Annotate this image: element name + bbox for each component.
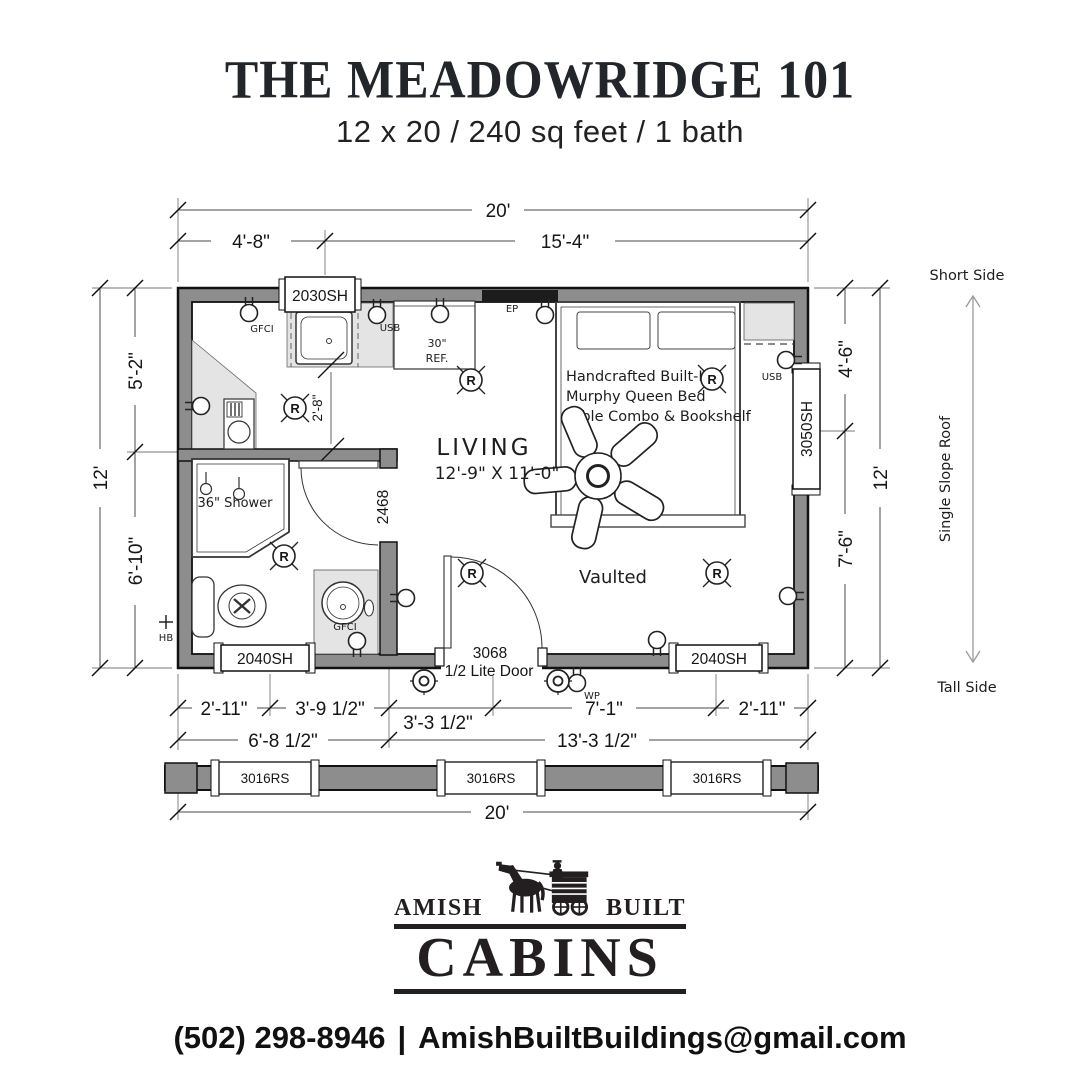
svg-text:R: R <box>467 566 477 581</box>
kitchen-range <box>224 399 254 449</box>
shower-label: 36" Shower <box>197 496 273 511</box>
bedroom-usb-label: USB <box>762 372 783 383</box>
dim-bottom-5: 2'-11" <box>739 699 786 720</box>
logo-amish-text: AMISH <box>394 896 483 922</box>
kitchen-usb-label: USB <box>380 323 401 334</box>
phone-number: (502) 298-8946 <box>173 1020 385 1055</box>
dim-right-upper: 4'-6" <box>836 340 857 378</box>
recessed-light-icon: R <box>281 394 309 422</box>
fridge-label: REF. <box>426 352 449 365</box>
horse-and-wagon-icon <box>488 850 601 922</box>
door-jamb <box>538 648 547 666</box>
recessed-light-icon: R <box>703 559 731 587</box>
bed-label-3: Table Combo & Bookshelf <box>565 409 752 425</box>
contact-separator: | <box>397 1020 406 1055</box>
logo-built-text: BUILT <box>606 896 686 922</box>
elevation-window-3: 3016RS <box>693 771 742 786</box>
short-side-label: Short Side <box>930 268 1005 284</box>
elevation-window-1: 3016RS <box>241 771 290 786</box>
dim-bottom-1: 2'-11" <box>201 699 248 720</box>
recessed-light-icon: R <box>457 366 485 394</box>
door-jamb <box>435 648 444 666</box>
entry-door-size: 3068 <box>473 645 507 662</box>
svg-text:R: R <box>290 401 300 416</box>
dim-right-lower: 7'-6" <box>836 530 857 568</box>
bath-gfci-label: GFCI <box>333 622 356 633</box>
window-br-label: 2040SH <box>691 651 747 668</box>
dim-bottom-3: 3'-3 1/2" <box>403 713 473 734</box>
hb-label: HB <box>159 633 174 644</box>
dim-counter: 2'-8" <box>310 394 325 421</box>
electrical-panel <box>482 290 558 302</box>
porch-light-icon <box>544 667 572 695</box>
dim-bottom-7: 13'-3 1/2" <box>557 731 637 752</box>
window-bl-label: 2040SH <box>237 651 293 668</box>
roof-slope-label: Single Slope Roof <box>938 415 954 542</box>
dim-bottom-2: 3'-9 1/2" <box>295 699 365 720</box>
company-logo: AMISH <box>394 850 686 994</box>
recessed-light-icon: R <box>270 542 298 570</box>
bed-label-2: Murphy Queen Bed <box>566 389 706 405</box>
dim-left-lower: 6'-10" <box>126 537 147 585</box>
logo-divider <box>394 989 686 994</box>
bookshelf <box>744 303 794 344</box>
hose-bib-icon: HB <box>159 615 174 644</box>
dim-bottom-6: 6'-8 1/2" <box>248 731 318 752</box>
window-right: 3050SH <box>792 363 820 495</box>
recessed-light-icon: R <box>458 559 486 587</box>
svg-text:R: R <box>466 373 476 388</box>
svg-text:R: R <box>707 372 717 387</box>
window-bottom-right: 2040SH <box>669 643 768 673</box>
dim-left-total: 12' <box>91 466 112 491</box>
outlet-icon <box>569 667 586 692</box>
tall-side-elevation: 3016RS 3016RS 3016RS <box>165 760 818 796</box>
svg-text:R: R <box>279 549 289 564</box>
kitchen-gfci-label: GFCI <box>250 324 273 335</box>
porch-light-icon <box>410 667 438 695</box>
wp-label: WP <box>584 691 600 702</box>
recessed-light-icon: R <box>698 365 726 393</box>
fridge-width-label: 30" <box>427 337 446 350</box>
window-right-label: 3050SH <box>799 401 816 457</box>
panel-label: EP <box>506 304 518 315</box>
window-top: 2030SH <box>279 277 361 312</box>
dim-left-upper: 5'-2" <box>126 352 147 390</box>
email-address: AmishBuiltBuildings@gmail.com <box>418 1020 906 1055</box>
window-top-label: 2030SH <box>292 288 348 305</box>
svg-text:R: R <box>712 566 722 581</box>
entry-door-type: 1/2 Lite Door <box>445 663 534 680</box>
dim-top-right: 15'-4" <box>541 232 589 253</box>
vaulted-label: Vaulted <box>579 567 647 588</box>
dim-elevation-total: 20' <box>485 803 510 824</box>
window-bottom-left: 2040SH <box>214 643 315 673</box>
tall-side-label: Tall Side <box>936 680 996 696</box>
dim-bottom-4: 7'-1" <box>585 699 623 720</box>
contact-line: (502) 298-8946|AmishBuiltBuildings@gmail… <box>0 1020 1080 1056</box>
roof-slope-arrow <box>966 296 980 662</box>
bed-label-1: Handcrafted Built-In <box>566 369 712 385</box>
living-size-label: 12'-9" X 11'-0" <box>435 464 560 484</box>
living-label: LIVING <box>436 435 531 461</box>
logo-cabins-text: CABINS <box>394 930 686 987</box>
dim-right-total: 12' <box>871 466 892 491</box>
elevation-window-2: 3016RS <box>467 771 516 786</box>
dim-top-total: 20' <box>486 201 511 222</box>
dim-top-left: 4'-8" <box>232 232 270 253</box>
bath-door-label: 2468 <box>375 490 392 524</box>
